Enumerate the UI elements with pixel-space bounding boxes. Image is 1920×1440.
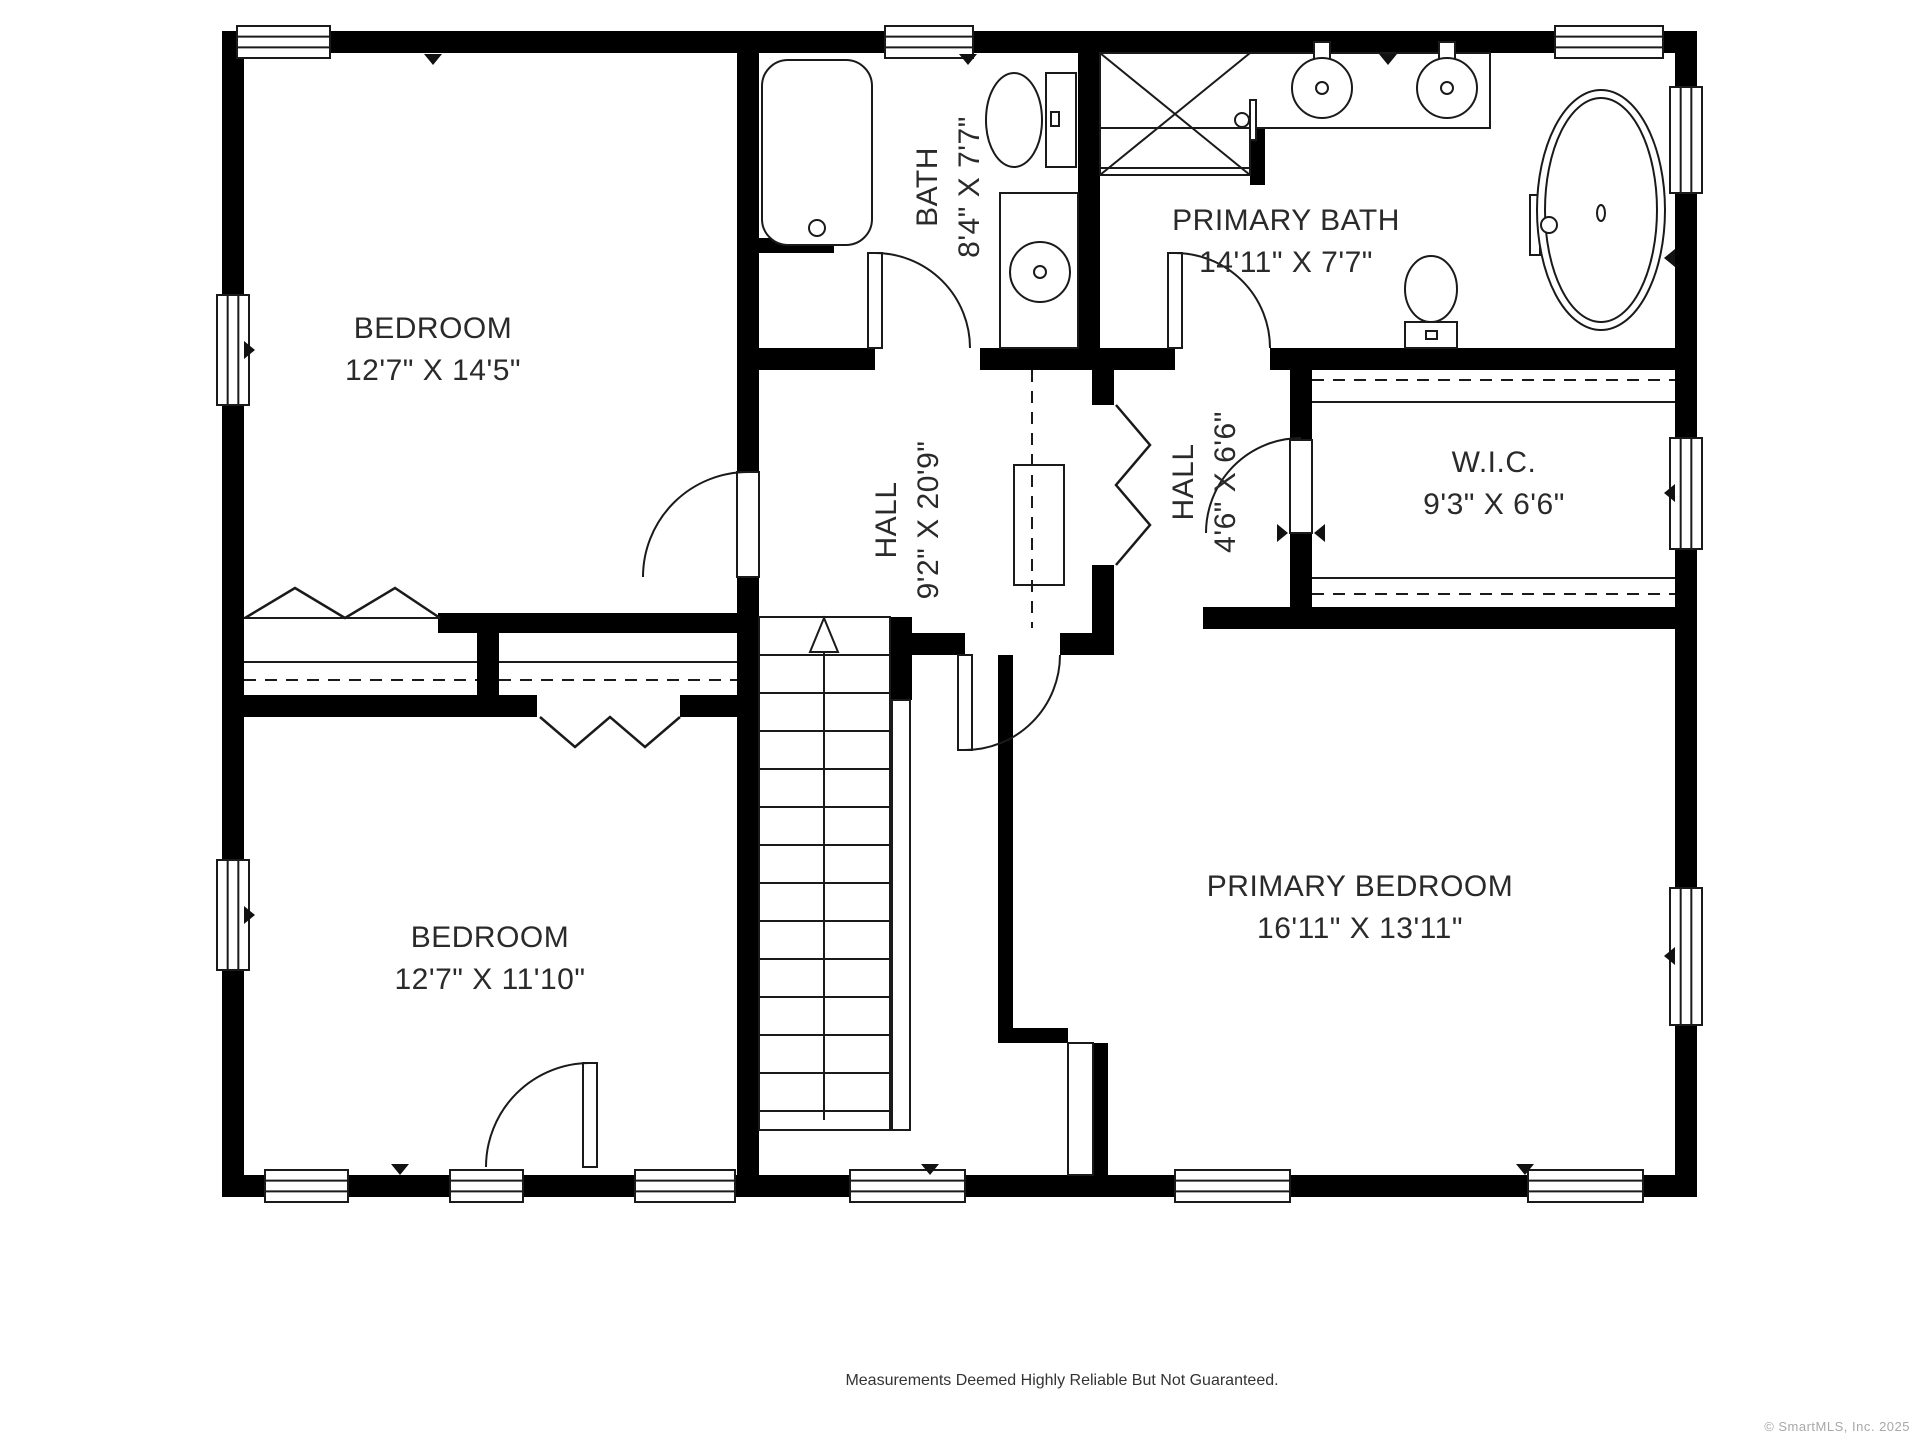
sink-drain bbox=[1441, 82, 1453, 94]
room-name: HALL bbox=[1167, 443, 1200, 520]
chimney-flue bbox=[1068, 1043, 1093, 1175]
wall bbox=[1092, 370, 1114, 405]
wall bbox=[680, 695, 759, 717]
room-dimensions: 14'11" X 7'7" bbox=[1199, 246, 1373, 279]
tub-faucet-knob bbox=[1541, 217, 1557, 233]
wall bbox=[1078, 53, 1100, 370]
wall bbox=[1270, 348, 1675, 370]
disclaimer-text: Measurements Deemed Highly Reliable But … bbox=[845, 1372, 1278, 1390]
wall bbox=[912, 633, 965, 655]
tub-faucet-knob bbox=[809, 220, 825, 236]
bathtub bbox=[762, 60, 872, 245]
room-label-hall-2: HALL4'6" X 6'6" bbox=[1167, 411, 1242, 553]
door-leaf bbox=[737, 472, 759, 577]
room-dimensions: 9'2" X 20'9" bbox=[912, 441, 945, 600]
wall bbox=[998, 1028, 1068, 1043]
door-leaf bbox=[1168, 253, 1182, 348]
toilet-flush bbox=[1051, 112, 1059, 126]
room-label-primary-bath: PRIMARY BATH14'11" X 7'7" bbox=[1172, 204, 1400, 279]
wall bbox=[222, 695, 537, 717]
room-dimensions: 8'4" X 7'7" bbox=[953, 116, 986, 258]
window bbox=[450, 1170, 523, 1202]
room-name: BEDROOM bbox=[354, 312, 513, 345]
shower-knob bbox=[1235, 113, 1249, 127]
room-dimensions: 12'7" X 14'5" bbox=[345, 354, 521, 387]
bifold-door bbox=[540, 717, 680, 747]
bifold-door bbox=[245, 588, 440, 618]
wall bbox=[222, 31, 244, 1197]
wall bbox=[980, 348, 1175, 370]
room-label-hall: HALL9'2" X 20'9" bbox=[870, 441, 945, 600]
wall bbox=[890, 617, 912, 700]
door-swing-arc bbox=[643, 472, 748, 577]
floor-plan-page: BEDROOM12'7" X 14'5"BATH8'4" X 7'7"PRIMA… bbox=[0, 0, 1920, 1440]
door-leaf bbox=[868, 253, 882, 348]
toilet-flush bbox=[1426, 331, 1437, 339]
room-dimensions: 12'7" X 11'10" bbox=[395, 963, 586, 996]
window bbox=[1175, 1170, 1290, 1202]
toilet-bowl bbox=[1405, 256, 1457, 322]
opening-marker bbox=[1277, 524, 1288, 542]
shower-head bbox=[1250, 100, 1256, 140]
door-swing-arc bbox=[486, 1063, 590, 1167]
wall bbox=[1092, 565, 1114, 633]
room-dimensions: 16'11" X 13'11" bbox=[1257, 912, 1463, 945]
window bbox=[237, 26, 330, 58]
window bbox=[850, 1170, 965, 1202]
opening-marker bbox=[391, 1164, 409, 1175]
window bbox=[1528, 1170, 1643, 1202]
floor-plan-svg: BEDROOM12'7" X 14'5"BATH8'4" X 7'7"PRIMA… bbox=[0, 0, 1920, 1440]
room-name: W.I.C. bbox=[1452, 446, 1537, 479]
room-label-wic: W.I.C.9'3" X 6'6" bbox=[1423, 446, 1565, 521]
room-label-bedroom-1: BEDROOM12'7" X 14'5" bbox=[345, 312, 521, 387]
window bbox=[635, 1170, 735, 1202]
toilet-bowl bbox=[986, 73, 1042, 167]
room-dimensions: 4'6" X 6'6" bbox=[1209, 411, 1242, 553]
window bbox=[1670, 87, 1702, 193]
window bbox=[265, 1170, 348, 1202]
door-swing-arc bbox=[875, 253, 970, 348]
opening-marker bbox=[424, 54, 442, 65]
window bbox=[885, 26, 973, 58]
room-dimensions: 9'3" X 6'6" bbox=[1423, 488, 1565, 521]
wall bbox=[1203, 607, 1675, 629]
stair-up-arrow bbox=[810, 618, 838, 652]
room-name: BEDROOM bbox=[411, 921, 570, 954]
stair-railing bbox=[892, 700, 910, 1130]
wall bbox=[737, 577, 759, 1175]
wall bbox=[998, 655, 1013, 1028]
door-leaf bbox=[958, 655, 972, 750]
room-label-bath: BATH8'4" X 7'7" bbox=[911, 116, 986, 258]
copyright-text: © SmartMLS, Inc. 2025 bbox=[1764, 1419, 1910, 1434]
wall bbox=[737, 53, 759, 472]
room-name: BATH bbox=[911, 147, 944, 227]
opening-marker bbox=[1664, 249, 1675, 267]
room-label-bedroom-2: BEDROOM12'7" X 11'10" bbox=[395, 921, 586, 996]
tub-drain bbox=[1597, 205, 1605, 221]
opening-marker bbox=[1314, 524, 1325, 542]
closet-shelf bbox=[1014, 465, 1064, 585]
room-name: HALL bbox=[870, 481, 903, 558]
door-leaf bbox=[1290, 440, 1312, 533]
room-label-primary-bedroom: PRIMARY BEDROOM16'11" X 13'11" bbox=[1207, 870, 1513, 945]
room-name: PRIMARY BEDROOM bbox=[1207, 870, 1513, 903]
sink-drain bbox=[1034, 266, 1046, 278]
wall bbox=[759, 348, 875, 370]
wall bbox=[1290, 370, 1312, 440]
wall bbox=[1093, 1043, 1108, 1175]
opening-marker bbox=[959, 54, 977, 65]
bifold-door bbox=[1116, 405, 1150, 565]
wall bbox=[1060, 633, 1114, 655]
window bbox=[1555, 26, 1663, 58]
door-leaf bbox=[583, 1063, 597, 1167]
sink-drain bbox=[1316, 82, 1328, 94]
room-name: PRIMARY BATH bbox=[1172, 204, 1400, 237]
